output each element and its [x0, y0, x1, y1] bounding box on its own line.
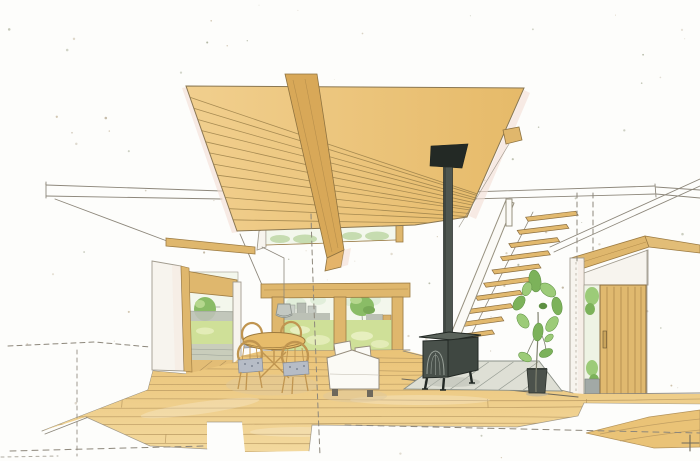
stove-side	[448, 337, 478, 377]
garden-terrace	[187, 344, 237, 360]
garden-bench	[366, 314, 383, 321]
sketch-canvas	[0, 0, 700, 461]
white-sliding-door	[152, 261, 192, 372]
plant-pot	[527, 369, 547, 393]
entry-sidelight	[584, 285, 600, 396]
window-header	[261, 283, 410, 298]
sofa-foot	[332, 389, 338, 396]
chair-cushion	[238, 358, 263, 373]
door-handle	[603, 331, 607, 348]
sofa-foot	[367, 390, 373, 397]
chair-cushion	[283, 361, 309, 376]
garden-fence	[187, 311, 237, 321]
interior-sketch	[0, 0, 700, 461]
window-post-right	[392, 297, 403, 350]
entry-door	[600, 285, 646, 396]
clerestory-end-post	[396, 224, 403, 242]
stair-handrail-post	[506, 199, 512, 226]
chimney-ceiling-plate	[430, 144, 468, 168]
lamp-shade	[276, 304, 292, 318]
left-opening-jamb	[233, 282, 241, 363]
